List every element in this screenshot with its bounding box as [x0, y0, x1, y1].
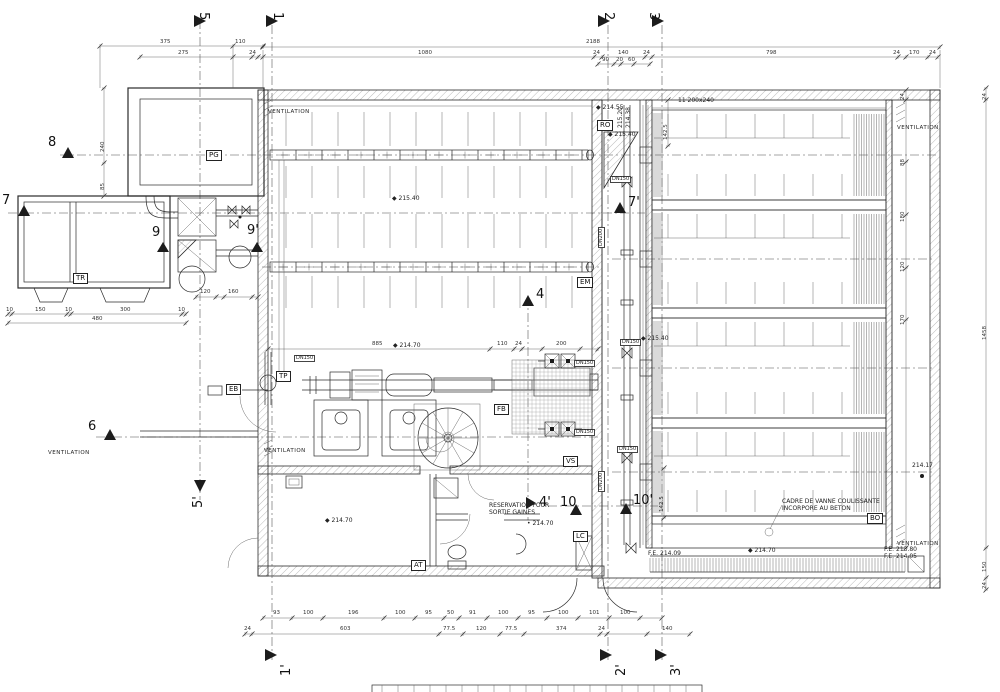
section-marker-4: 4	[536, 288, 544, 301]
dimension-label: 180	[901, 212, 907, 223]
pipe-label: DN150	[574, 360, 595, 367]
note-label: 11 200x240	[678, 98, 714, 104]
dimension-label: 95	[528, 611, 535, 617]
dimension-label: 95	[425, 611, 432, 617]
dimension-label: 77.5	[443, 627, 455, 633]
section-marker-9: 9	[152, 226, 160, 239]
section-marker-10p: 10'	[633, 494, 653, 507]
dimension-label: 275	[178, 51, 189, 57]
plan-labels: VENTILATIONVENTILATIONVENTILATIONVENTILA…	[0, 0, 1000, 692]
section-marker-4p: 4'	[539, 496, 551, 509]
section-marker-9p: 9'	[247, 224, 259, 237]
dimension-label: 140	[618, 51, 629, 57]
dimension-label: 10	[6, 308, 13, 314]
dimension-label: 10	[65, 308, 72, 314]
level-label: 214.38	[626, 107, 632, 128]
dimension-label: 200	[556, 342, 567, 348]
dimension-label: 100	[303, 611, 314, 617]
dimension-label: 101	[589, 611, 600, 617]
level-label: 214.17	[912, 463, 933, 469]
dimension-label: 24	[249, 51, 256, 57]
dimension-label: 110	[497, 342, 508, 348]
section-marker-2p: 2'	[615, 664, 628, 676]
dimension-label: 24	[244, 627, 251, 633]
dimension-label: 170	[909, 51, 920, 57]
room-tag-em: EM	[577, 277, 593, 288]
dimension-label: 24	[593, 51, 600, 57]
section-marker-2: 2	[602, 12, 615, 20]
section-marker-3: 3	[647, 12, 660, 20]
dimension-label: 24	[515, 342, 522, 348]
dimension-label: 150	[983, 562, 989, 573]
level-label: F.E. 214.05	[884, 554, 917, 560]
dimension-label: 93	[273, 611, 280, 617]
dimension-label: 20	[616, 58, 623, 64]
section-marker-5: 5	[197, 12, 210, 20]
section-marker-3p: 3'	[670, 664, 683, 676]
ventilation-label: VENTILATION	[268, 110, 310, 116]
section-marker-1: 1	[271, 12, 284, 20]
dimension-label: 2188	[586, 40, 600, 46]
dimension-label: 24	[901, 93, 907, 100]
dimension-label: 160	[228, 290, 239, 296]
dimension-label: 100	[620, 611, 631, 617]
dimension-label: 374	[556, 627, 567, 633]
dimension-label: 885	[372, 342, 383, 348]
dimension-label: 24	[893, 51, 900, 57]
dimension-label: 142.5	[664, 124, 670, 140]
level-label: ◆ 215.40	[392, 196, 420, 202]
room-tag-fb: FB	[494, 404, 509, 415]
level-label: ◆ 215.40	[608, 132, 636, 138]
room-tag-ro: RO	[597, 120, 613, 131]
dimension-label: 100	[395, 611, 406, 617]
section-marker-7: 7	[2, 194, 10, 207]
section-marker-1p: 1'	[280, 664, 293, 676]
dimension-label: 24	[598, 627, 605, 633]
note-label: SORTIE GAINES	[489, 510, 535, 516]
level-label: ◆ 214.70	[393, 343, 421, 349]
dimension-label: 120	[901, 262, 907, 273]
dimension-label: 110	[235, 40, 246, 46]
dimension-label: 24	[929, 51, 936, 57]
dimension-label: 240	[101, 142, 107, 153]
pipe-label: DN200	[598, 227, 605, 248]
dimension-label: 196	[348, 611, 359, 617]
dimension-label: 480	[92, 317, 103, 323]
dimension-label: 140	[662, 627, 673, 633]
dimension-label: 300	[120, 308, 131, 314]
ventilation-label: VENTILATION	[264, 449, 306, 455]
dimension-label: 798	[766, 51, 777, 57]
section-marker-10: 10	[560, 496, 577, 509]
pipe-label: DN150	[294, 355, 315, 362]
ventilation-label: VENTILATION	[897, 126, 939, 132]
dimension-label: 24	[643, 51, 650, 57]
level-label: ◆ 214.70	[748, 548, 776, 554]
pipe-label: DN150	[620, 339, 641, 346]
dimension-label: 120	[476, 627, 487, 633]
ventilation-label: VENTILATION	[48, 451, 90, 457]
dimension-label: 85	[101, 183, 107, 190]
dimension-label: 50	[447, 611, 454, 617]
dimension-label: 60	[628, 58, 635, 64]
dimension-label: 142.5	[660, 496, 666, 512]
dimension-label: 1458	[983, 326, 989, 340]
dimension-label: 170	[901, 315, 907, 326]
section-marker-8: 8	[48, 136, 56, 149]
dimension-label: 120	[200, 290, 211, 296]
level-label: 215.20	[618, 107, 624, 128]
dimension-label: 91	[469, 611, 476, 617]
dimension-label: 24	[983, 93, 989, 100]
level-label: • 214.70	[527, 521, 553, 527]
level-label: ◆ 214.70	[325, 518, 353, 524]
dimension-label: 1080	[418, 51, 432, 57]
dimension-label: 375	[160, 40, 171, 46]
dimension-label: 100	[498, 611, 509, 617]
dimension-label: 77.5	[505, 627, 517, 633]
pipe-label: DN150	[574, 429, 595, 436]
level-label: ◆ 215.40	[641, 336, 669, 342]
dimension-label: 24	[983, 582, 989, 589]
room-tag-pg: PG	[206, 150, 222, 161]
room-tag-vs: VS	[563, 456, 578, 467]
section-marker-5p: 5'	[192, 496, 205, 508]
dimension-label: 10	[178, 308, 185, 314]
dimension-label: 150	[35, 308, 46, 314]
pipe-label: DN150	[610, 176, 631, 183]
level-label: F.E. 214.09	[648, 551, 681, 557]
floor-plan-canvas: VENTILATIONVENTILATIONVENTILATIONVENTILA…	[0, 0, 1000, 692]
dimension-label: 100	[558, 611, 569, 617]
dimension-label: 88	[901, 159, 907, 166]
room-tag-tp: TP	[276, 371, 291, 382]
note-label: INCORPORE AU BETON	[782, 506, 851, 512]
room-tag-tr: TR	[73, 273, 88, 284]
dimension-label: 603	[340, 627, 351, 633]
room-tag-bo: BO	[867, 513, 883, 524]
room-tag-at: AT	[411, 560, 426, 571]
dimension-label: 90	[602, 58, 609, 64]
room-tag-eb: EB	[226, 384, 241, 395]
section-marker-6: 6	[88, 420, 96, 433]
room-tag-lc: LC	[573, 531, 588, 542]
section-marker-7p: 7'	[628, 196, 640, 209]
pipe-label: DN150	[617, 446, 638, 453]
pipe-label: DN200	[598, 471, 605, 492]
